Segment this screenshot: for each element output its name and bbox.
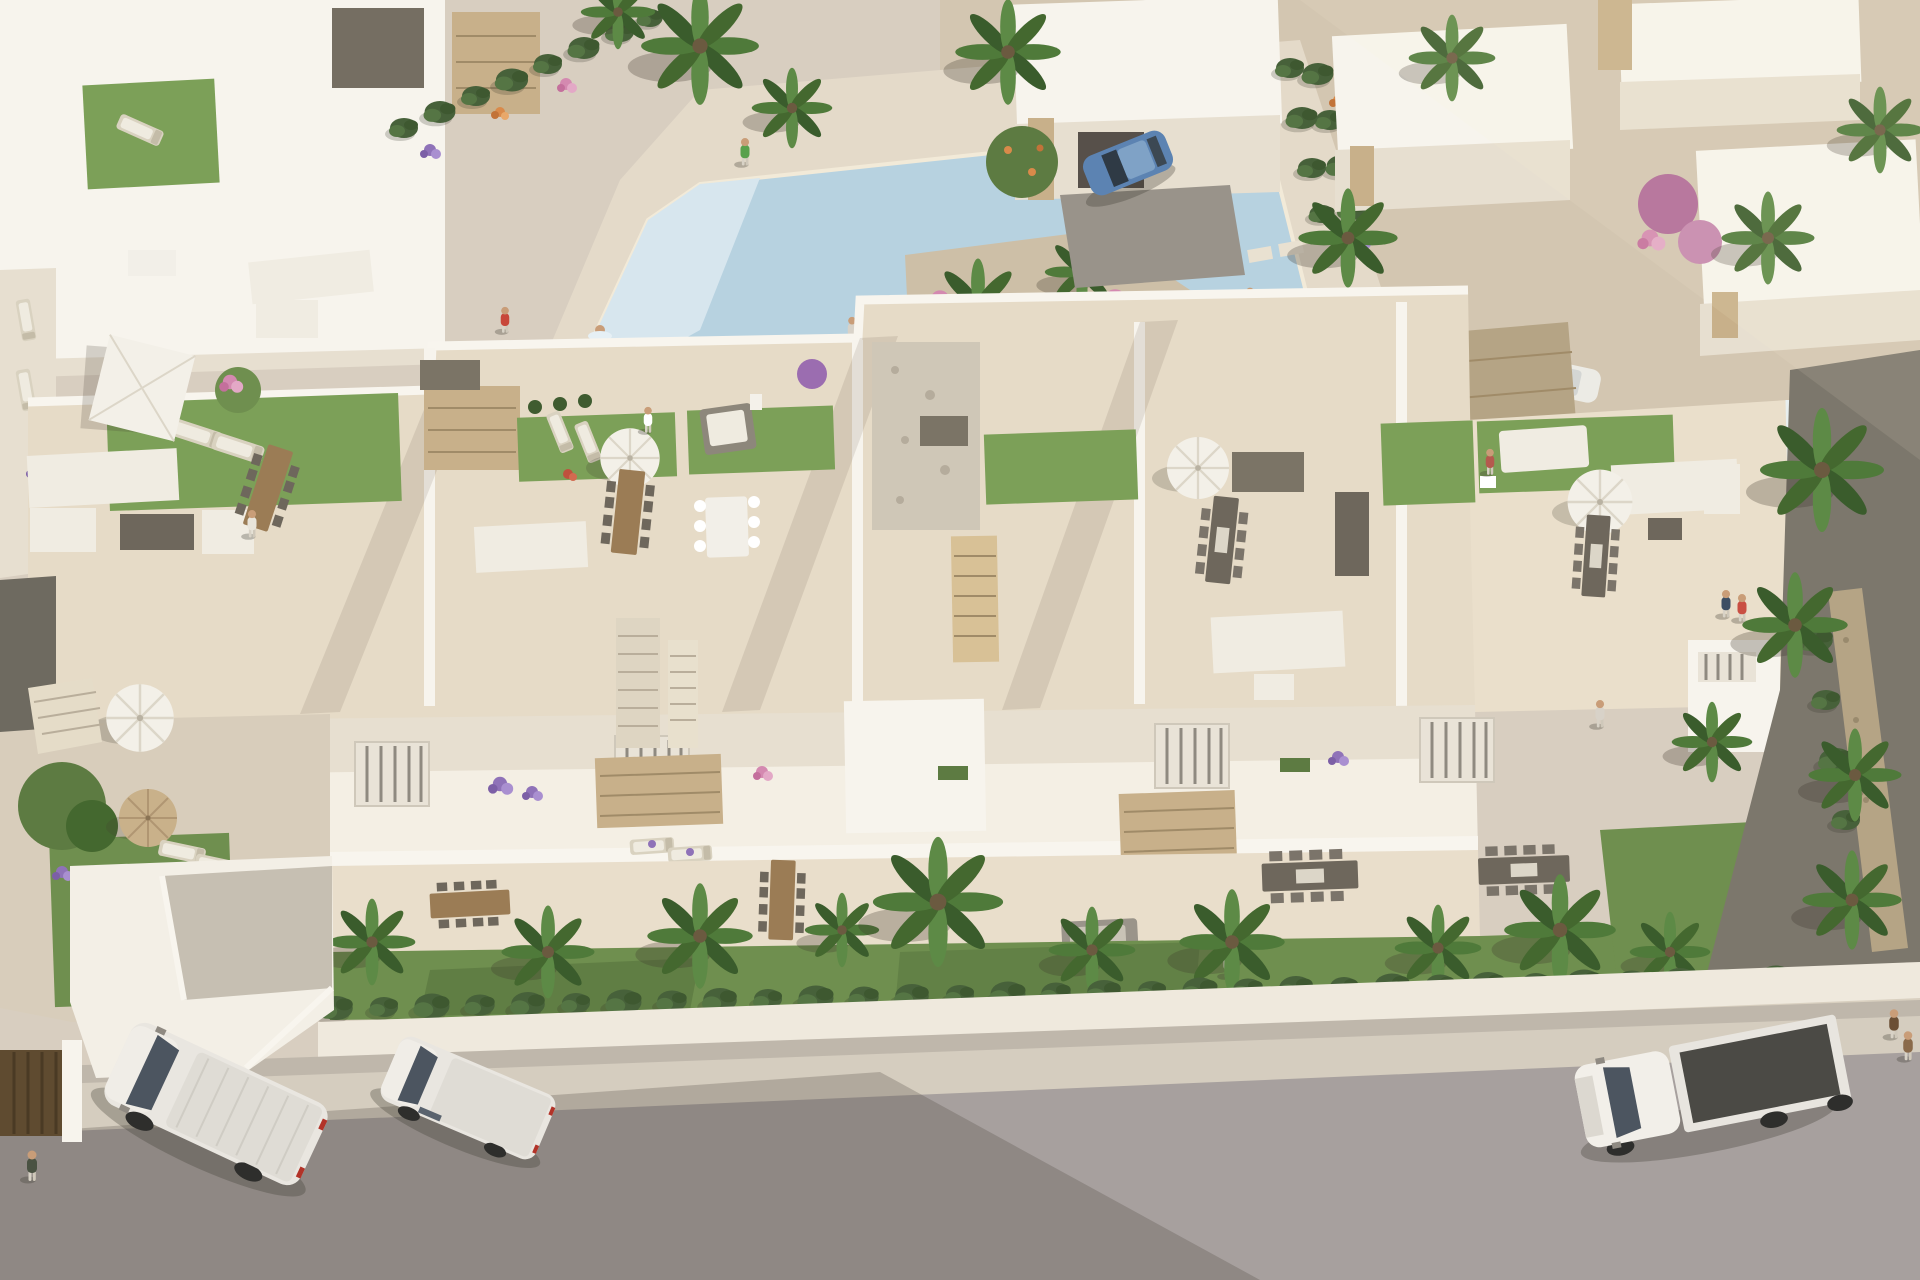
daybed	[1499, 425, 1590, 473]
garden-gate	[0, 1040, 82, 1142]
curtain-window	[355, 742, 429, 806]
daybed	[699, 403, 757, 456]
curtain-window	[1155, 724, 1229, 788]
aerial-render-scene	[0, 0, 1920, 1280]
stone-panel	[595, 754, 723, 828]
render-canvas	[0, 0, 1920, 1280]
curtain-window	[1420, 718, 1494, 782]
